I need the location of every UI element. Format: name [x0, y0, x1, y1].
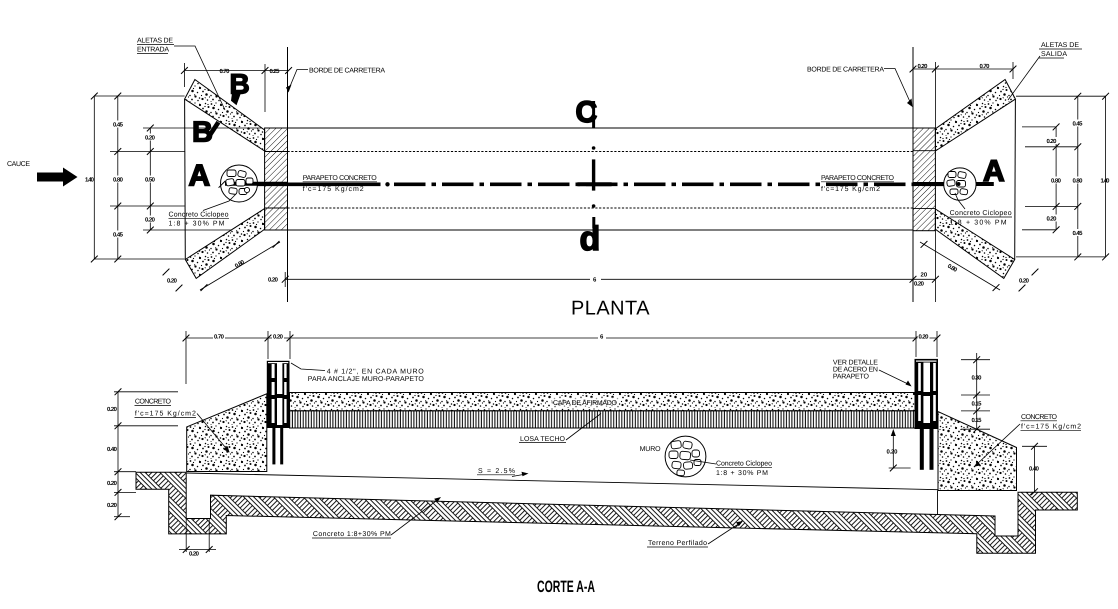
svg-text:1:8 + 30% PM: 1:8 + 30% PM: [950, 220, 1007, 227]
svg-text:VER DETALLE: VER DETALLE: [833, 360, 878, 367]
svg-text:0.80: 0.80: [113, 177, 124, 184]
svg-text:0.20: 0.20: [145, 135, 156, 142]
svg-text:LOSA TECHO: LOSA TECHO: [520, 436, 566, 443]
svg-text:ALETAS DE: ALETAS DE: [137, 38, 173, 45]
svg-text:0.20: 0.20: [918, 63, 929, 70]
svg-text:CAPA DE AFIRMADO: CAPA DE AFIRMADO: [553, 400, 618, 407]
svg-text:PARA ANCLAJE MURO-PARAPETO: PARA ANCLAJE MURO-PARAPETO: [308, 376, 425, 383]
svg-text:0.20: 0.20: [273, 334, 284, 341]
svg-text:0.20: 0.20: [1047, 138, 1058, 145]
svg-text:0.20: 0.20: [1019, 278, 1030, 285]
svg-text:ENTRADA: ENTRADA: [137, 47, 169, 54]
svg-text:PARAPETO: PARAPETO: [833, 374, 870, 381]
svg-text:0.20: 0.20: [107, 480, 118, 487]
svg-text:0.20: 0.20: [107, 406, 118, 413]
svg-text:0.70: 0.70: [220, 68, 231, 75]
svg-text:BORDE DE CARRETERA: BORDE DE CARRETERA: [807, 67, 884, 74]
svg-text:0.45: 0.45: [113, 232, 124, 239]
svg-text:CONCRETO: CONCRETO: [135, 399, 172, 406]
svg-text:0.20: 0.20: [145, 217, 156, 224]
svg-text:0.20: 0.20: [887, 449, 899, 456]
svg-text:0.20: 0.20: [189, 551, 200, 558]
svg-text:0.45: 0.45: [1073, 121, 1084, 128]
svg-text:PLANTA: PLANTA: [571, 298, 650, 320]
svg-text:0.25: 0.25: [270, 68, 281, 75]
svg-text:0.70: 0.70: [214, 334, 225, 341]
svg-text:Terreno Perfilado: Terreno Perfilado: [648, 539, 707, 547]
svg-text:ALETAS DE: ALETAS DE: [1041, 42, 1079, 49]
svg-text:0.20: 0.20: [919, 334, 930, 341]
svg-text:CAUCE: CAUCE: [7, 161, 30, 168]
svg-text:A: A: [189, 159, 211, 192]
svg-text:PARAPETO CONCRETO: PARAPETO CONCRETO: [303, 175, 378, 182]
svg-text:DE ACERO EN: DE ACERO EN: [833, 367, 878, 374]
svg-text:0.50: 0.50: [145, 177, 156, 184]
svg-text:CONCRETO: CONCRETO: [1021, 414, 1058, 421]
svg-text:20: 20: [921, 272, 928, 279]
svg-text:Concreto 1:8+30% PM: Concreto 1:8+30% PM: [313, 531, 391, 538]
svg-text:PARAPETO CONCRETO: PARAPETO CONCRETO: [821, 175, 895, 182]
svg-text:0.80: 0.80: [1073, 178, 1084, 185]
svg-text:f'c=175 Kg/cm2: f'c=175 Kg/cm2: [821, 185, 880, 193]
svg-text:1.40: 1.40: [85, 177, 95, 184]
svg-text:0.15: 0.15: [972, 401, 983, 408]
svg-text:0.15: 0.15: [972, 417, 983, 424]
svg-text:0.20: 0.20: [107, 502, 118, 509]
svg-text:CORTE A-A: CORTE A-A: [537, 578, 595, 596]
svg-text:Concreto Ciclopeo: Concreto Ciclopeo: [716, 460, 772, 468]
svg-text:0.20: 0.20: [167, 278, 178, 285]
svg-text:0.45: 0.45: [1073, 230, 1084, 237]
svg-text:0.20: 0.20: [268, 277, 279, 284]
svg-text:0.30: 0.30: [972, 375, 983, 382]
svg-text:MURO: MURO: [640, 446, 662, 453]
svg-text:S = 2.5%: S = 2.5%: [478, 468, 515, 475]
svg-text:SALIDA: SALIDA: [1041, 51, 1067, 58]
svg-text:A: A: [983, 155, 1005, 188]
svg-text:f'c=175 Kg/cm2: f'c=175 Kg/cm2: [135, 410, 196, 418]
svg-text:0.20: 0.20: [914, 281, 925, 288]
svg-text:0.45: 0.45: [113, 122, 124, 129]
svg-text:f'c=175 Kg/cm2: f'c=175 Kg/cm2: [1021, 423, 1081, 431]
svg-text:d: d: [580, 220, 601, 258]
svg-text:1:8 + 30% PM: 1:8 + 30% PM: [716, 470, 768, 477]
svg-text:0.20: 0.20: [1047, 216, 1058, 223]
svg-text:Concreto Ciclopeo: Concreto Ciclopeo: [169, 211, 229, 219]
svg-text:0.80: 0.80: [1051, 178, 1062, 185]
svg-text:BORDE DE CARRETERA: BORDE DE CARRETERA: [309, 68, 385, 75]
svg-text:1.40: 1.40: [1101, 178, 1111, 185]
svg-text:0.40: 0.40: [107, 446, 118, 453]
svg-text:4 # 1/2", EN CADA MURO: 4 # 1/2", EN CADA MURO: [327, 368, 425, 376]
svg-text:0.40: 0.40: [1029, 466, 1040, 473]
svg-text:Concreto Ciclopeo: Concreto Ciclopeo: [950, 209, 1012, 217]
svg-text:f'c=175 Kg/cm2: f'c=175 Kg/cm2: [303, 185, 364, 193]
svg-text:0.70: 0.70: [980, 63, 991, 70]
